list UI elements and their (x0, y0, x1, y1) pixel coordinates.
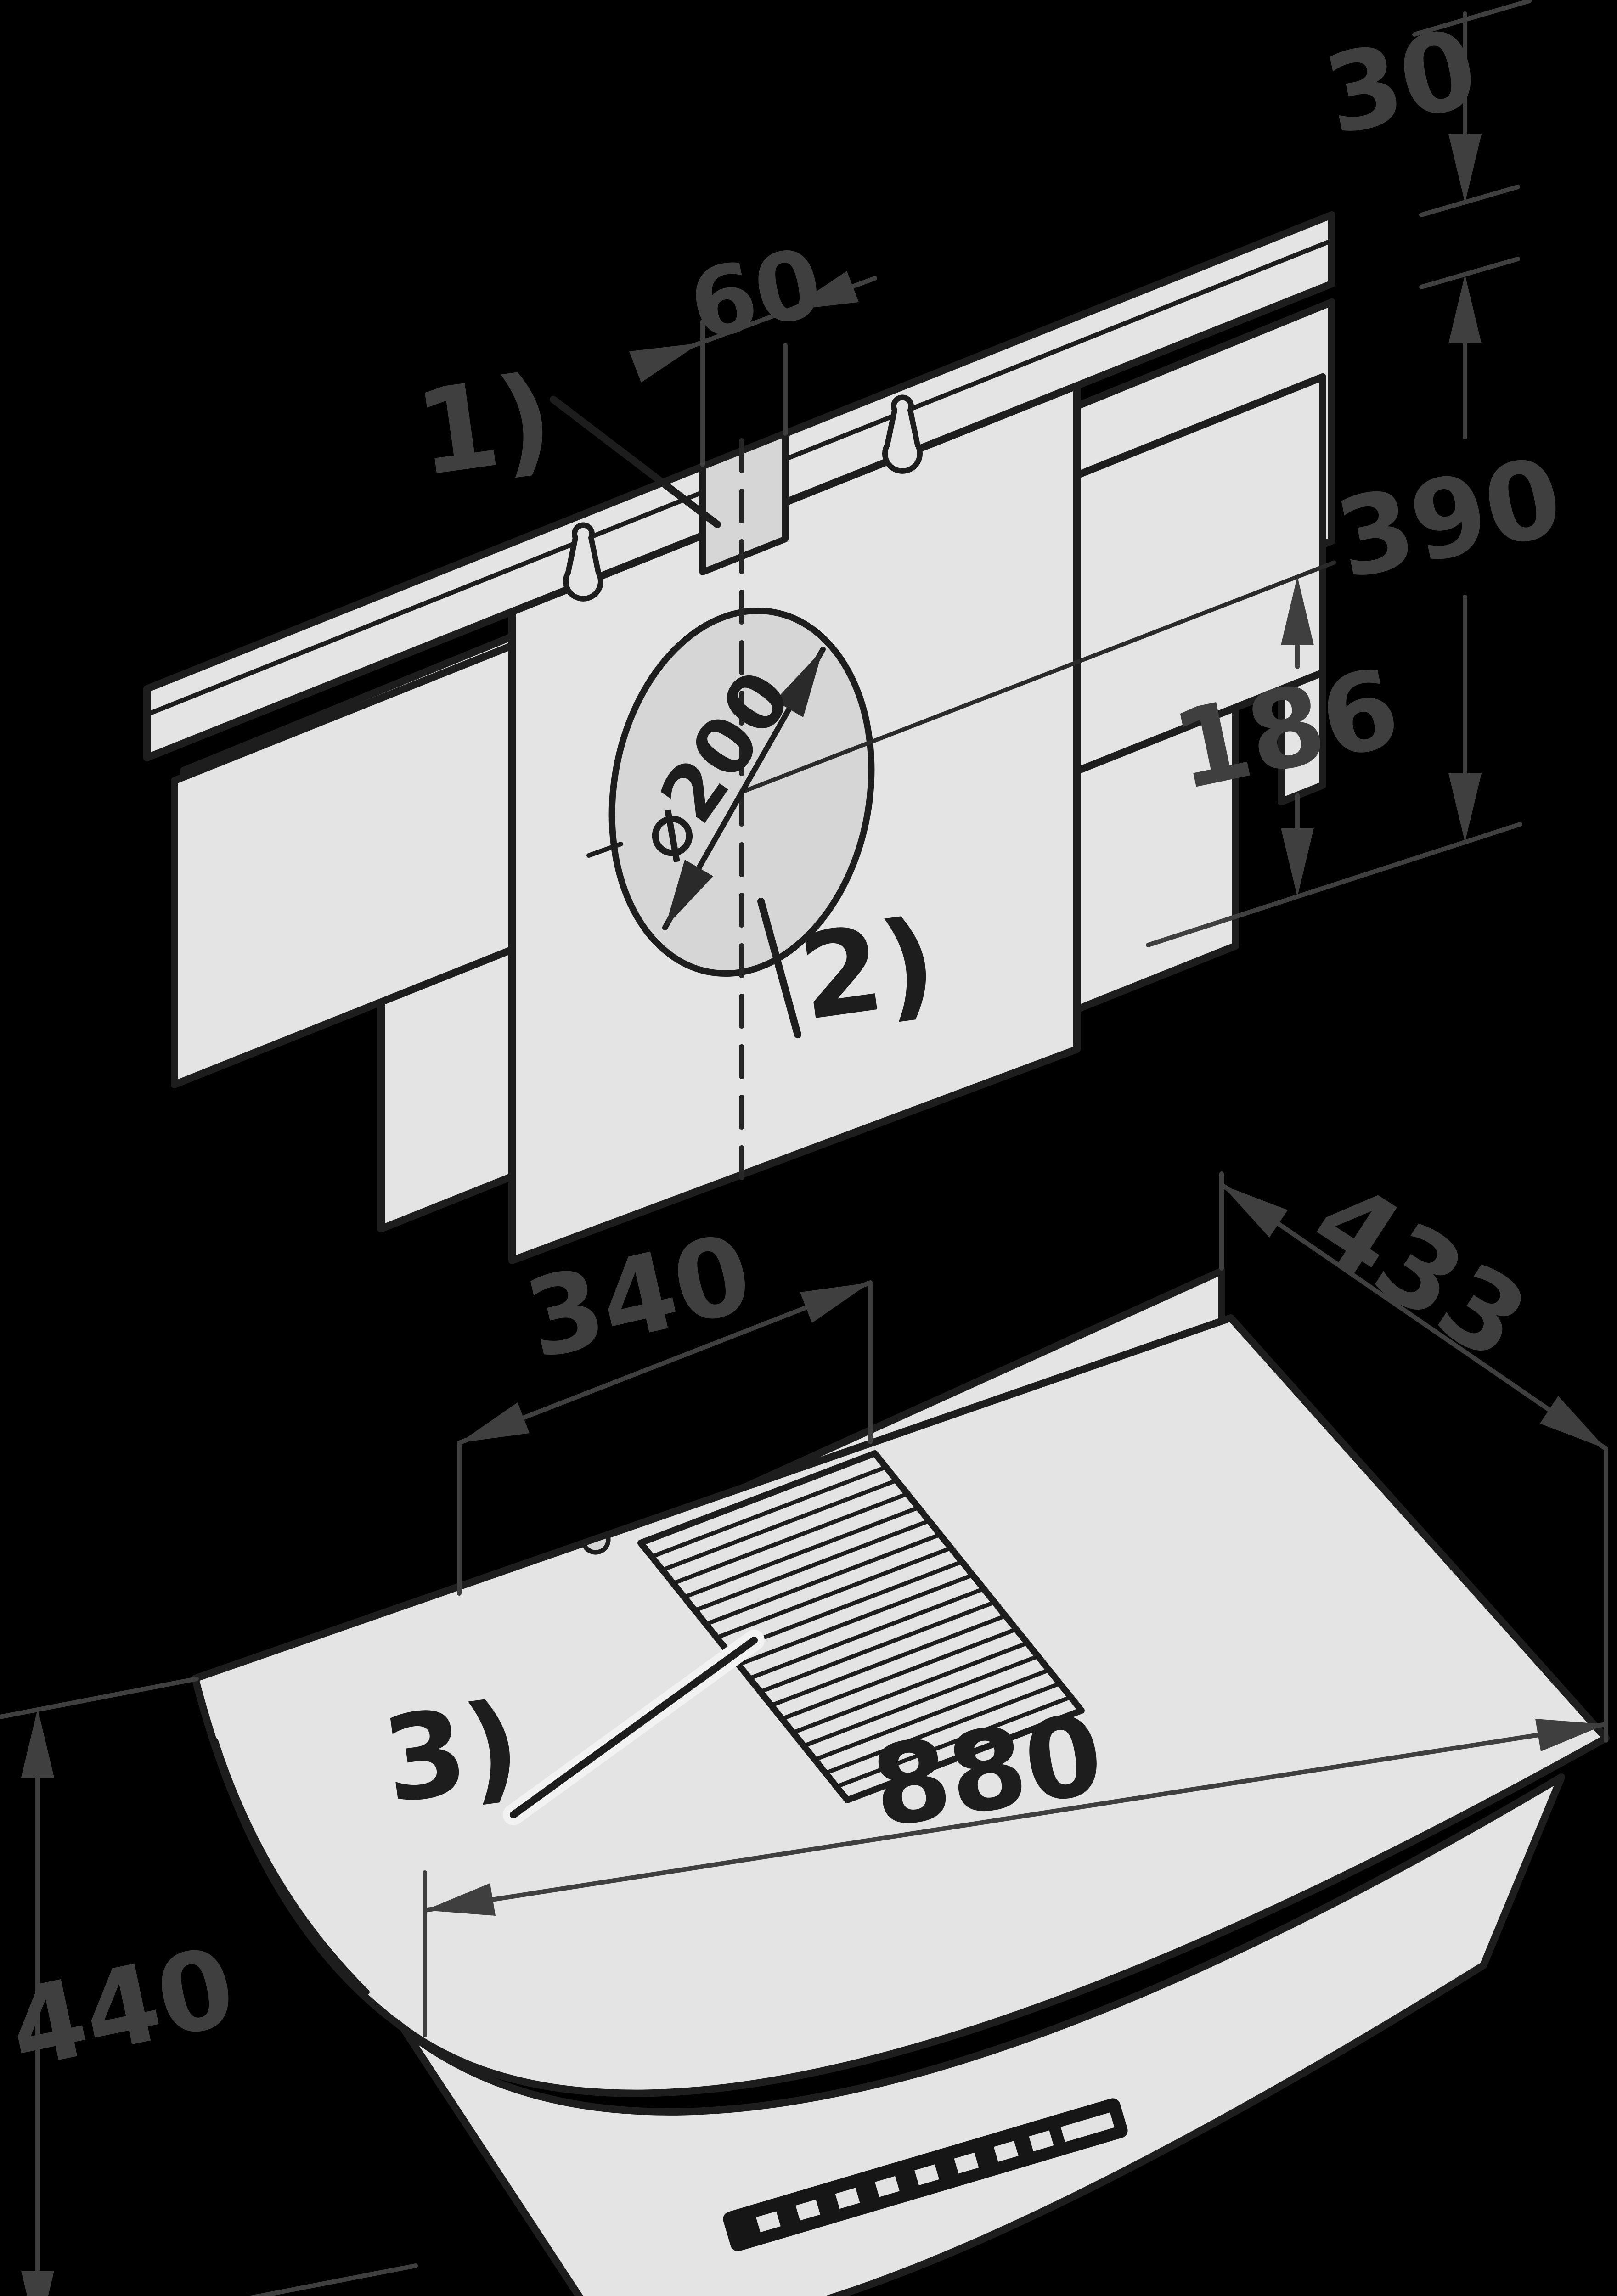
callout-1-label: 1) (408, 349, 560, 503)
template-figure: ⌀200 1) 2) 60 30 390 186 (147, 1, 1572, 1261)
callout-3-label: 3) (375, 1676, 528, 1830)
dim-30-arrow-icon (1448, 134, 1482, 203)
dim-433-arrow-top-icon (1222, 1185, 1288, 1238)
callout-2-label: 2) (791, 893, 944, 1047)
dim-390-label: 390 (1326, 434, 1573, 603)
dim-186-arrow-down-icon (1281, 828, 1314, 897)
dim-390-arrow-up-icon (1448, 275, 1482, 343)
technical-diagram: ⌀200 1) 2) 60 30 390 186 (0, 0, 1617, 2296)
dim-340-arrow-left-icon (459, 1402, 530, 1443)
dim-440-arrow-down-icon (21, 2271, 54, 2296)
dim-390-arrow-down-icon (1448, 773, 1482, 842)
dim-60-label: 60 (681, 228, 832, 362)
dim-433-label: 433 (1291, 1158, 1548, 1385)
dim-390-ref-tick (1421, 259, 1518, 287)
dim-433-arrow-bottom-icon (1540, 1396, 1606, 1449)
hood-figure: 3) 340 433 880 440 (0, 1158, 1606, 2296)
dim-440-ref-bottom (0, 2266, 416, 2296)
diagram-page: ⌀200 1) 2) 60 30 390 186 (0, 0, 1617, 2296)
dim-440-arrow-up-icon (21, 1709, 54, 1778)
dim-30-ref-tick (1421, 187, 1518, 215)
dim-340-arrow-right-icon (800, 1283, 870, 1323)
dim-60-arrow-left-icon (629, 343, 700, 383)
dim-440-ref-top (0, 1679, 197, 1717)
